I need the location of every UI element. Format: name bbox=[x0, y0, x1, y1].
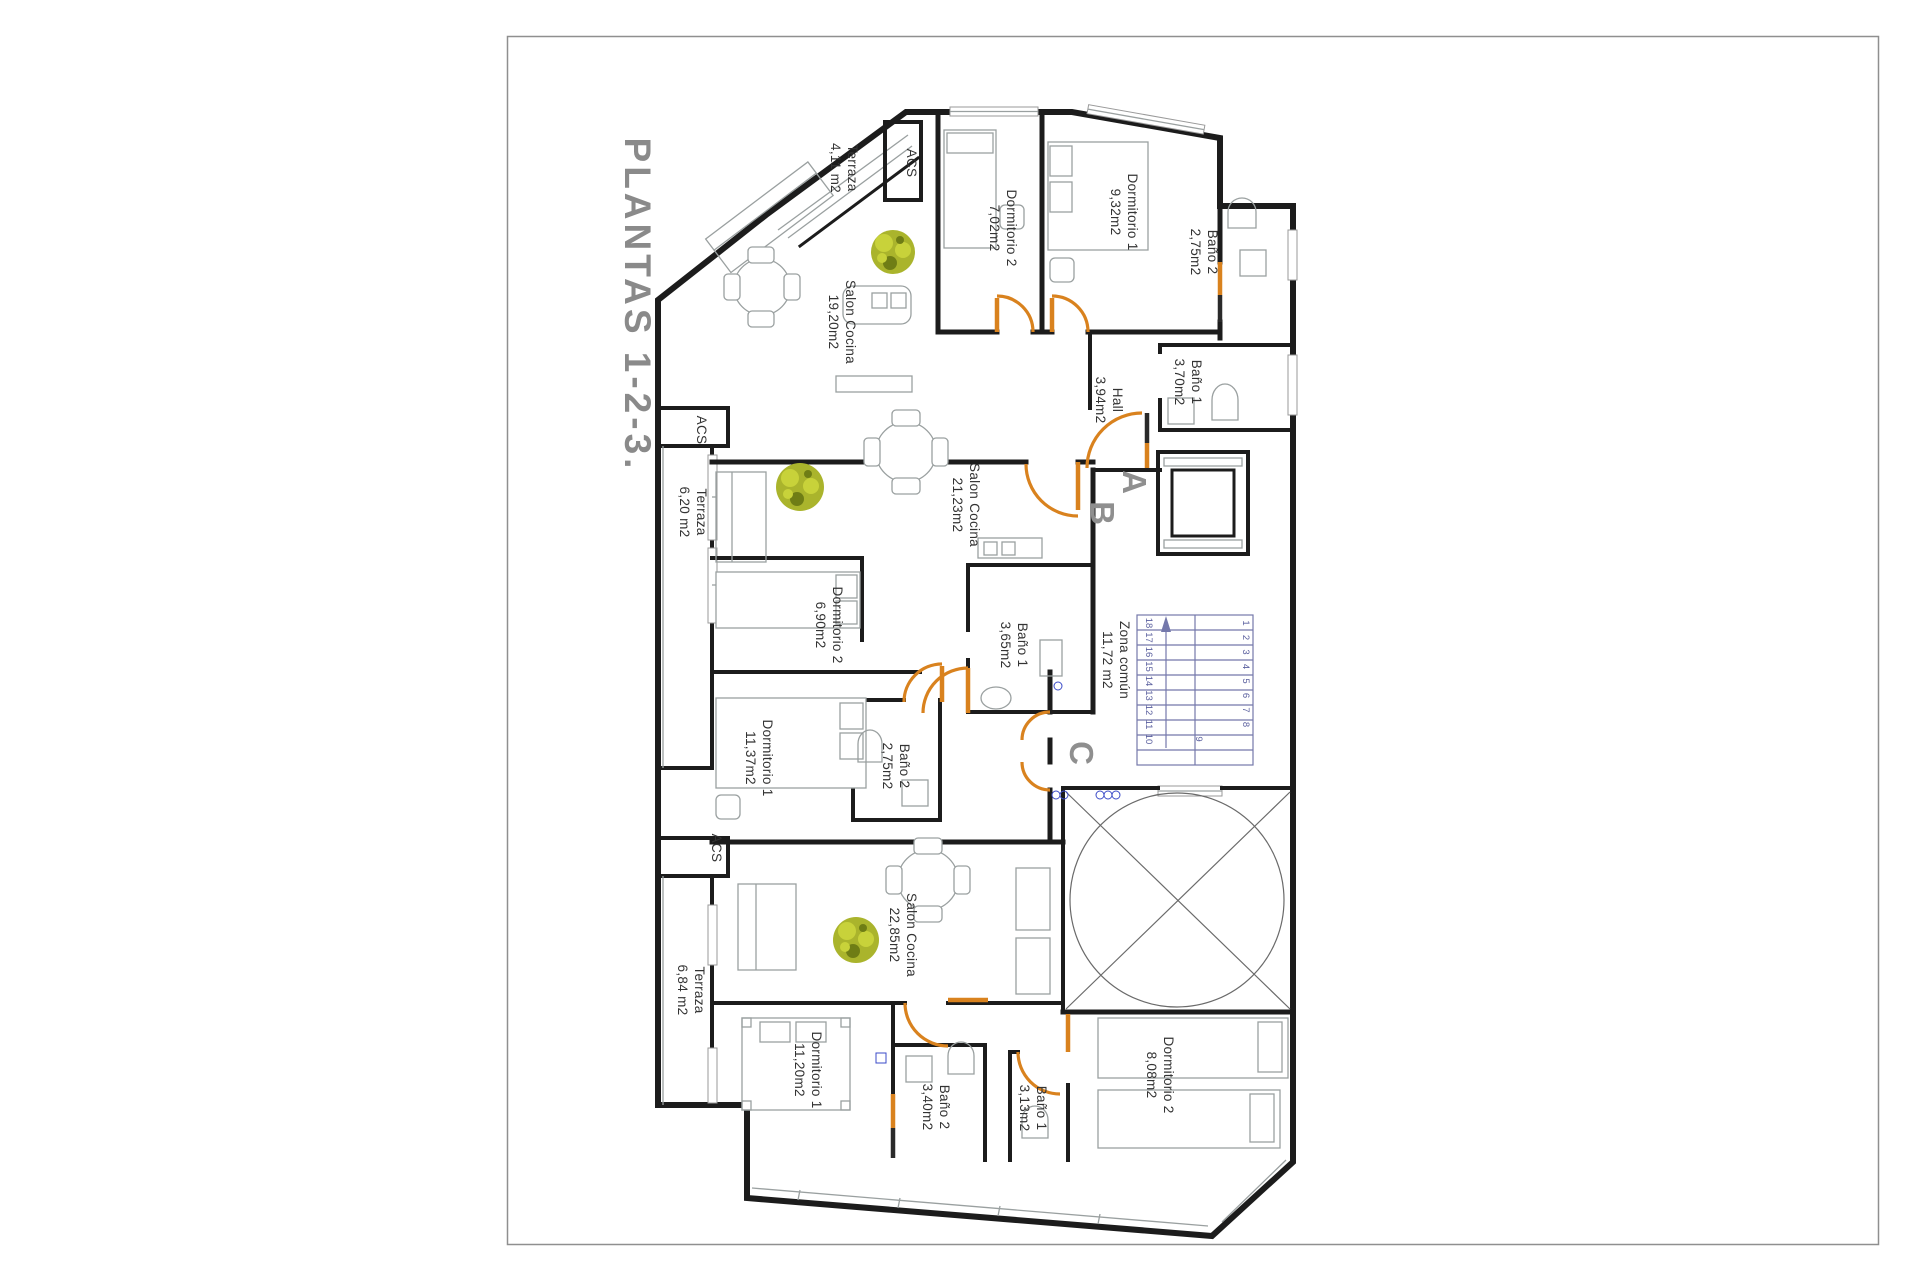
room-area: 6,84 m2 bbox=[675, 965, 690, 1016]
room-area: 21,23m2 bbox=[950, 478, 965, 533]
room-name: Dormitorio 2 bbox=[830, 586, 845, 663]
plant-salon-c bbox=[833, 917, 879, 963]
room-area: 2,75m2 bbox=[1188, 229, 1203, 276]
stair-number: 2 bbox=[1240, 635, 1251, 640]
stair-number: 9 bbox=[1193, 736, 1204, 741]
room-area: 11,20m2 bbox=[792, 1043, 807, 1097]
label-bano2-c: Baño 2 3,40m2 bbox=[920, 1084, 952, 1131]
unit-b-letter: B bbox=[1084, 501, 1121, 525]
stair-number: 1 bbox=[1240, 620, 1251, 625]
stair-number: 14 bbox=[1143, 676, 1154, 687]
stair-number: 16 bbox=[1143, 647, 1154, 658]
room-name: Terraza bbox=[845, 144, 860, 191]
room-name: ACS bbox=[904, 149, 919, 178]
room-area: 6,20 m2 bbox=[677, 487, 692, 538]
label-zona-comun: Zona común 11,72 m2 bbox=[1100, 621, 1132, 699]
label-bano1-c: Baño 1 3,13m2 bbox=[1017, 1085, 1049, 1132]
room-name: Zona común bbox=[1117, 621, 1132, 699]
plant-salon-b bbox=[776, 463, 824, 511]
label-salon-c: Salon Cocina 22,85m2 bbox=[887, 893, 919, 977]
room-name: Dormitorio 1 bbox=[1125, 173, 1140, 250]
room-name: Terraza bbox=[694, 488, 709, 535]
label-bano1-b: Baño 1 3,65m2 bbox=[998, 622, 1030, 669]
stair-number: 10 bbox=[1143, 734, 1154, 745]
room-area: 22,85m2 bbox=[887, 908, 902, 963]
unit-a-letter: A bbox=[1116, 470, 1153, 494]
label-terraza-a: Terraza 4,11 m2 bbox=[828, 143, 860, 193]
stair-number: 5 bbox=[1240, 678, 1251, 683]
label-terraza-b: Terraza 6,20 m2 bbox=[677, 487, 709, 538]
stair-number: 18 bbox=[1143, 618, 1154, 629]
room-area: 3,40m2 bbox=[920, 1084, 935, 1131]
room-name: Dormitorio 1 bbox=[760, 719, 775, 796]
stair-number: 11 bbox=[1143, 720, 1154, 730]
stair-number: 17 bbox=[1143, 632, 1154, 643]
label-acs-b: ACS bbox=[694, 416, 709, 445]
stair-numbers: 18 17 16 15 14 13 12 11 10 1 2 3 4 5 6 7… bbox=[1143, 618, 1251, 745]
room-name: Salon Cocina bbox=[967, 463, 982, 547]
stair-number: 3 bbox=[1240, 649, 1251, 654]
label-terraza-c: Terraza 6,84 m2 bbox=[675, 965, 707, 1016]
room-area: 9,32m2 bbox=[1108, 189, 1123, 236]
staircase: 18 17 16 15 14 13 12 11 10 1 2 3 4 5 6 7… bbox=[1137, 615, 1253, 796]
room-name: Baño 2 bbox=[1205, 230, 1220, 275]
room-name: Baño 2 bbox=[897, 744, 912, 789]
room-area: 7,02m2 bbox=[987, 205, 1002, 252]
room-area: 11,37m2 bbox=[743, 731, 758, 785]
room-name: Salon Cocina bbox=[843, 280, 858, 364]
stair-number: 12 bbox=[1143, 705, 1154, 716]
room-area: 3,94m2 bbox=[1093, 377, 1108, 424]
room-name: Baño 1 bbox=[1015, 623, 1030, 668]
stair-number: 13 bbox=[1143, 690, 1154, 701]
stair-number: 15 bbox=[1143, 661, 1154, 672]
label-salon-b: Salon Cocina 21,23m2 bbox=[950, 463, 982, 547]
label-bano2-a: Baño 2 2,75m2 bbox=[1188, 229, 1220, 276]
room-area: 3,13m2 bbox=[1017, 1085, 1032, 1132]
room-name: Dormitorio 2 bbox=[1161, 1036, 1176, 1113]
label-salon-a: Salon Cocina 19,20m2 bbox=[826, 280, 858, 364]
room-area: 8,08m2 bbox=[1144, 1052, 1159, 1099]
room-name: Baño 2 bbox=[937, 1085, 952, 1130]
stair-number: 8 bbox=[1240, 722, 1251, 727]
room-area: 3,70m2 bbox=[1172, 359, 1187, 406]
room-name: Baño 1 bbox=[1189, 360, 1204, 405]
stair-number: 4 bbox=[1240, 664, 1251, 669]
label-bano2-b: Baño 2 2,75m2 bbox=[880, 743, 912, 790]
room-area: 3,65m2 bbox=[998, 622, 1013, 669]
plant-salon-a bbox=[871, 230, 915, 274]
unit-c-letter: C bbox=[1063, 741, 1100, 765]
label-acs-c: ACS bbox=[709, 834, 724, 863]
room-area: 4,11 m2 bbox=[828, 143, 843, 193]
room-name: ACS bbox=[709, 834, 724, 863]
label-acs-a: ACS bbox=[904, 149, 919, 178]
furniture bbox=[706, 130, 1288, 1148]
room-name: Dormitorio 2 bbox=[1004, 189, 1019, 266]
elevator bbox=[1158, 452, 1248, 554]
room-name: ACS bbox=[694, 416, 709, 445]
stair-number: 6 bbox=[1240, 693, 1251, 698]
patio-lightwell bbox=[1063, 788, 1293, 1012]
room-name: Baño 1 bbox=[1034, 1086, 1049, 1131]
stair-number: 7 bbox=[1240, 707, 1251, 712]
floor-plan-drawing: 18 17 16 15 14 13 12 11 10 1 2 3 4 5 6 7… bbox=[0, 0, 1920, 1280]
plan-title: PLANTAS 1-2-3. bbox=[617, 138, 658, 473]
room-name: Terraza bbox=[692, 966, 707, 1013]
room-name: Dormitorio 1 bbox=[809, 1031, 824, 1108]
room-area: 11,72 m2 bbox=[1100, 631, 1115, 689]
floor-plan-page: 18 17 16 15 14 13 12 11 10 1 2 3 4 5 6 7… bbox=[0, 0, 1920, 1280]
room-area: 2,75m2 bbox=[880, 743, 895, 790]
room-area: 6,90m2 bbox=[813, 602, 828, 649]
room-name: Hall bbox=[1110, 388, 1125, 412]
room-area: 19,20m2 bbox=[826, 295, 841, 350]
room-name: Salon Cocina bbox=[904, 893, 919, 977]
